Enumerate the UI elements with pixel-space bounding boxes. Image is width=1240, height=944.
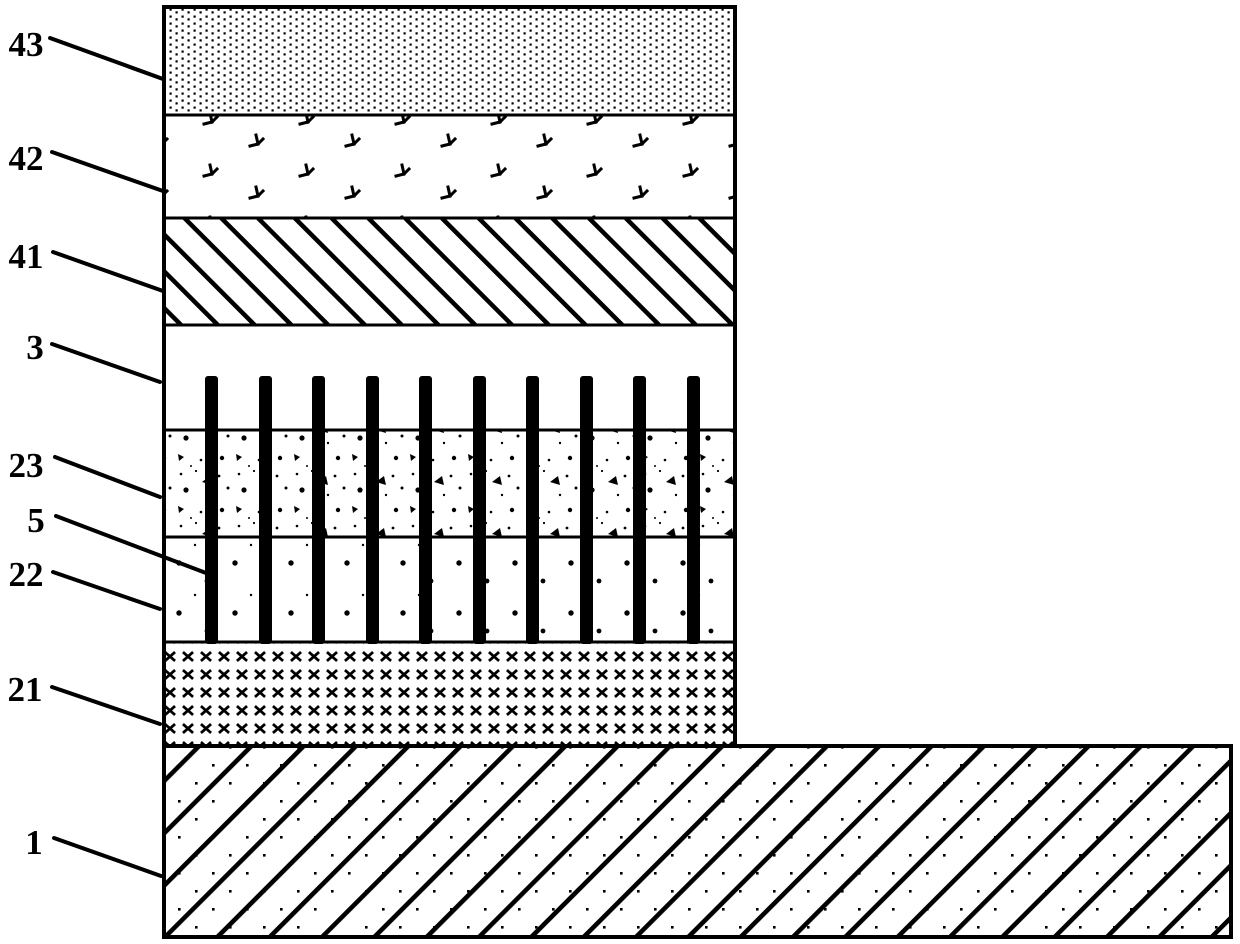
label-1: 1 xyxy=(25,823,43,862)
layer-3-fill xyxy=(164,325,735,430)
via-bar xyxy=(419,376,432,644)
layer-41-fill xyxy=(164,218,735,325)
label-22: 22 xyxy=(9,555,44,594)
label-41: 41 xyxy=(9,237,44,276)
layer-43-fill xyxy=(164,7,735,115)
leader-line-21 xyxy=(52,687,160,724)
via-bar xyxy=(633,376,646,644)
label-5: 5 xyxy=(27,501,45,540)
label-3: 3 xyxy=(26,328,44,367)
via-bar xyxy=(526,376,539,644)
patent-layer-diagram: 43 42 41 3 23 5 22 21 1 xyxy=(0,0,1240,944)
leader-line-42 xyxy=(52,152,163,191)
via-bar xyxy=(312,376,325,644)
layer-23-fill xyxy=(164,430,735,537)
via-bar xyxy=(205,376,218,644)
layer-21-fill xyxy=(164,642,735,746)
layer-22-fill xyxy=(164,537,735,642)
leader-line-43 xyxy=(50,38,163,79)
label-23: 23 xyxy=(9,446,44,485)
label-43: 43 xyxy=(9,25,44,64)
label-21: 21 xyxy=(8,670,43,709)
leader-line-22 xyxy=(53,572,160,609)
via-bar xyxy=(366,376,379,644)
leader-line-3 xyxy=(52,344,160,382)
via-bar xyxy=(259,376,272,644)
layer-1-hatch-fill xyxy=(164,746,1231,937)
layer-42-fill xyxy=(164,115,735,218)
leader-line-1 xyxy=(54,838,161,876)
label-42: 42 xyxy=(9,139,44,178)
leader-line-41 xyxy=(53,252,163,291)
via-bar xyxy=(580,376,593,644)
leader-line-23 xyxy=(55,457,160,497)
via-bar xyxy=(473,376,486,644)
via-bar xyxy=(687,376,700,644)
figure-page: 43 42 41 3 23 5 22 21 1 xyxy=(0,0,1240,944)
